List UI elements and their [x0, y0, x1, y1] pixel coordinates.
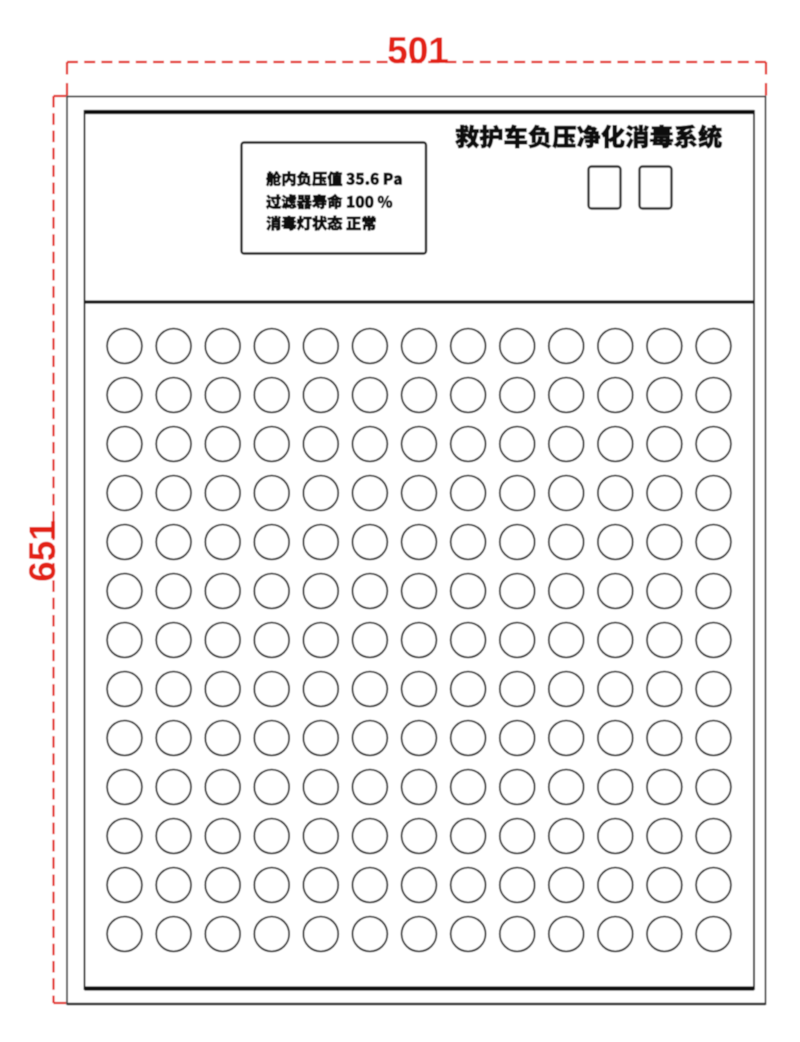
svg-text:501: 501 [387, 30, 449, 71]
svg-text:651: 651 [22, 520, 63, 582]
